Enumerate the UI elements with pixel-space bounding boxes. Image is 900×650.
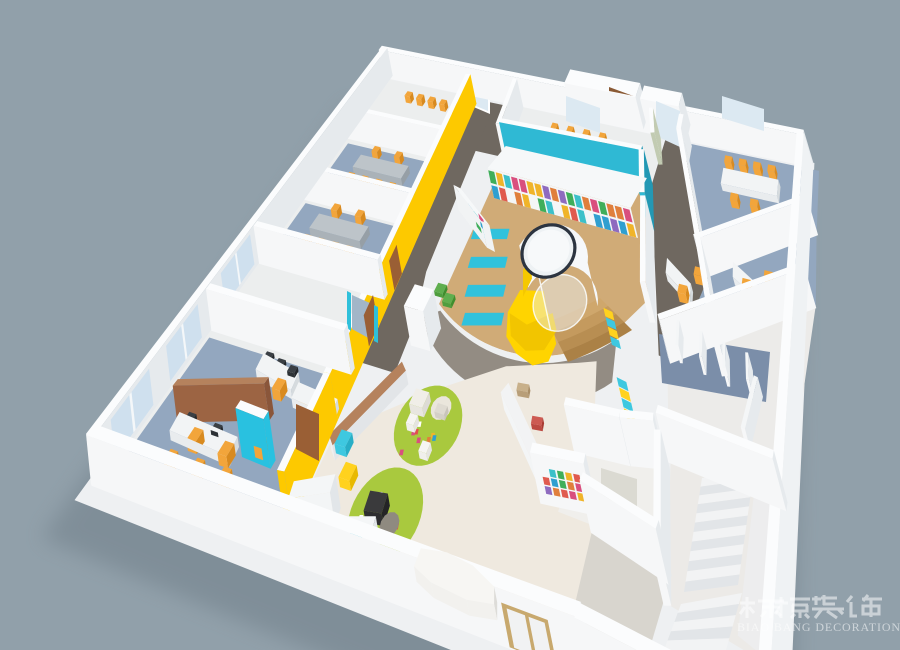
svg-text:BIAO BANG DECORATION: BIAO BANG DECORATION bbox=[737, 620, 900, 634]
